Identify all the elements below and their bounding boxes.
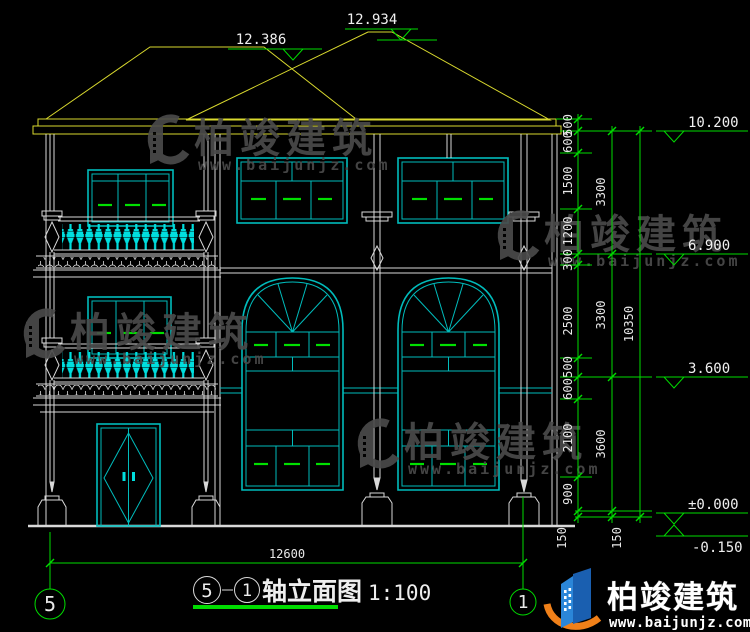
elevation-drawing: 柏竣建筑 www.baijunjz.com 柏竣建筑 www.baijunjz.… bbox=[0, 0, 750, 632]
roof bbox=[46, 32, 550, 120]
title-name: 轴立面图 bbox=[262, 577, 362, 606]
dim-label: 600 bbox=[561, 378, 575, 400]
dim-label: 3300 bbox=[594, 178, 608, 207]
title-underline bbox=[193, 605, 338, 609]
floor-slab-lines bbox=[220, 388, 552, 393]
dim-label: 300 bbox=[561, 249, 575, 271]
elevation-eave: 10.200 bbox=[688, 115, 739, 131]
dim-label: 2100 bbox=[561, 424, 575, 453]
elevation-site: -0.150 bbox=[692, 540, 743, 556]
dim-label: 500 bbox=[561, 356, 575, 378]
dimensions-right: 500 600 1500 1200 300 2500 500 600 2100 … bbox=[555, 114, 748, 556]
watermark-url: www.baijunjz.com bbox=[198, 156, 391, 174]
dim-label: 600 bbox=[561, 131, 575, 153]
dim-label: 1200 bbox=[561, 217, 575, 246]
title-block: 5 1 轴立面图 1:100 bbox=[193, 577, 431, 610]
dim-label: 3600 bbox=[594, 430, 608, 459]
secondary-ridge-elevation: 12.386 bbox=[236, 32, 287, 48]
title-axis-start: 5 bbox=[201, 580, 212, 602]
window-3f-left bbox=[88, 170, 173, 226]
roof-drop-line bbox=[447, 134, 451, 158]
logo-brand: 柏竣建筑 bbox=[607, 580, 739, 616]
balcony-3f bbox=[33, 217, 221, 277]
logo-mark bbox=[547, 568, 599, 628]
watermark: 柏竣建筑 www.baijunjz.com bbox=[150, 116, 391, 174]
dim-label: 150 bbox=[610, 527, 624, 549]
cad-canvas: 柏竣建筑 www.baijunjz.com 柏竣建筑 www.baijunjz.… bbox=[0, 0, 750, 632]
dim-label: 2500 bbox=[561, 307, 575, 336]
elevation-ground: ±0.000 bbox=[688, 497, 739, 513]
dim-label: 900 bbox=[561, 483, 575, 505]
main-ridge-elevation: 12.934 bbox=[347, 12, 398, 28]
title-scale: 1:100 bbox=[368, 581, 431, 605]
elevation-floor2: 3.600 bbox=[688, 361, 730, 377]
elevation-markers: 10.200 6.900 3.600 ±0.000 -0.150 bbox=[656, 115, 748, 556]
title-axis-end: 1 bbox=[242, 581, 252, 601]
brand-logo: 柏竣建筑 www.baijunjz.com bbox=[547, 568, 750, 631]
dim-label: 1500 bbox=[561, 167, 575, 196]
dim-label: 10350 bbox=[622, 306, 636, 342]
window-3f-main-right bbox=[398, 158, 508, 223]
svg-text:www.baijunjz.com: www.baijunjz.com bbox=[408, 460, 601, 478]
axis-number-right: 1 bbox=[518, 592, 529, 613]
overall-width-label: 12600 bbox=[269, 547, 305, 561]
balusters bbox=[62, 224, 194, 250]
entry-door bbox=[97, 424, 160, 526]
elevation-floor3: 6.900 bbox=[688, 238, 730, 254]
left-roof-hip bbox=[46, 47, 356, 119]
svg-text:www.baijunjz.com: www.baijunjz.com bbox=[74, 350, 267, 368]
axis-number-left: 5 bbox=[44, 592, 56, 616]
door-handle bbox=[132, 472, 135, 481]
dimensions-top: 12.934 12.386 bbox=[228, 12, 437, 60]
arched-window-left bbox=[242, 278, 343, 490]
dim-label: 3300 bbox=[594, 301, 608, 330]
logo-url: www.baijunjz.com bbox=[609, 615, 750, 631]
dim-label: 150 bbox=[555, 527, 569, 549]
door-handle bbox=[123, 472, 126, 481]
